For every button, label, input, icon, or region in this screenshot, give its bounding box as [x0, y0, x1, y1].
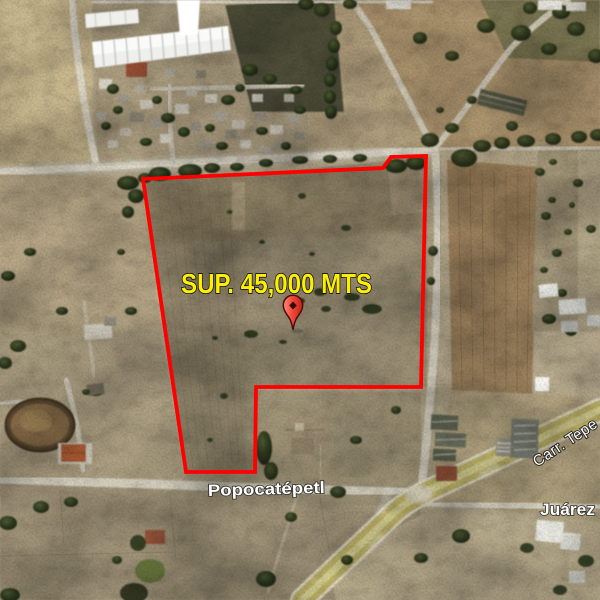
- svg-text:Popocatépetl: Popocatépetl: [208, 479, 325, 500]
- svg-text:Juárez: Juárez: [540, 501, 595, 519]
- svg-text:SUP. 45,000 MTS: SUP. 45,000 MTS: [181, 268, 372, 299]
